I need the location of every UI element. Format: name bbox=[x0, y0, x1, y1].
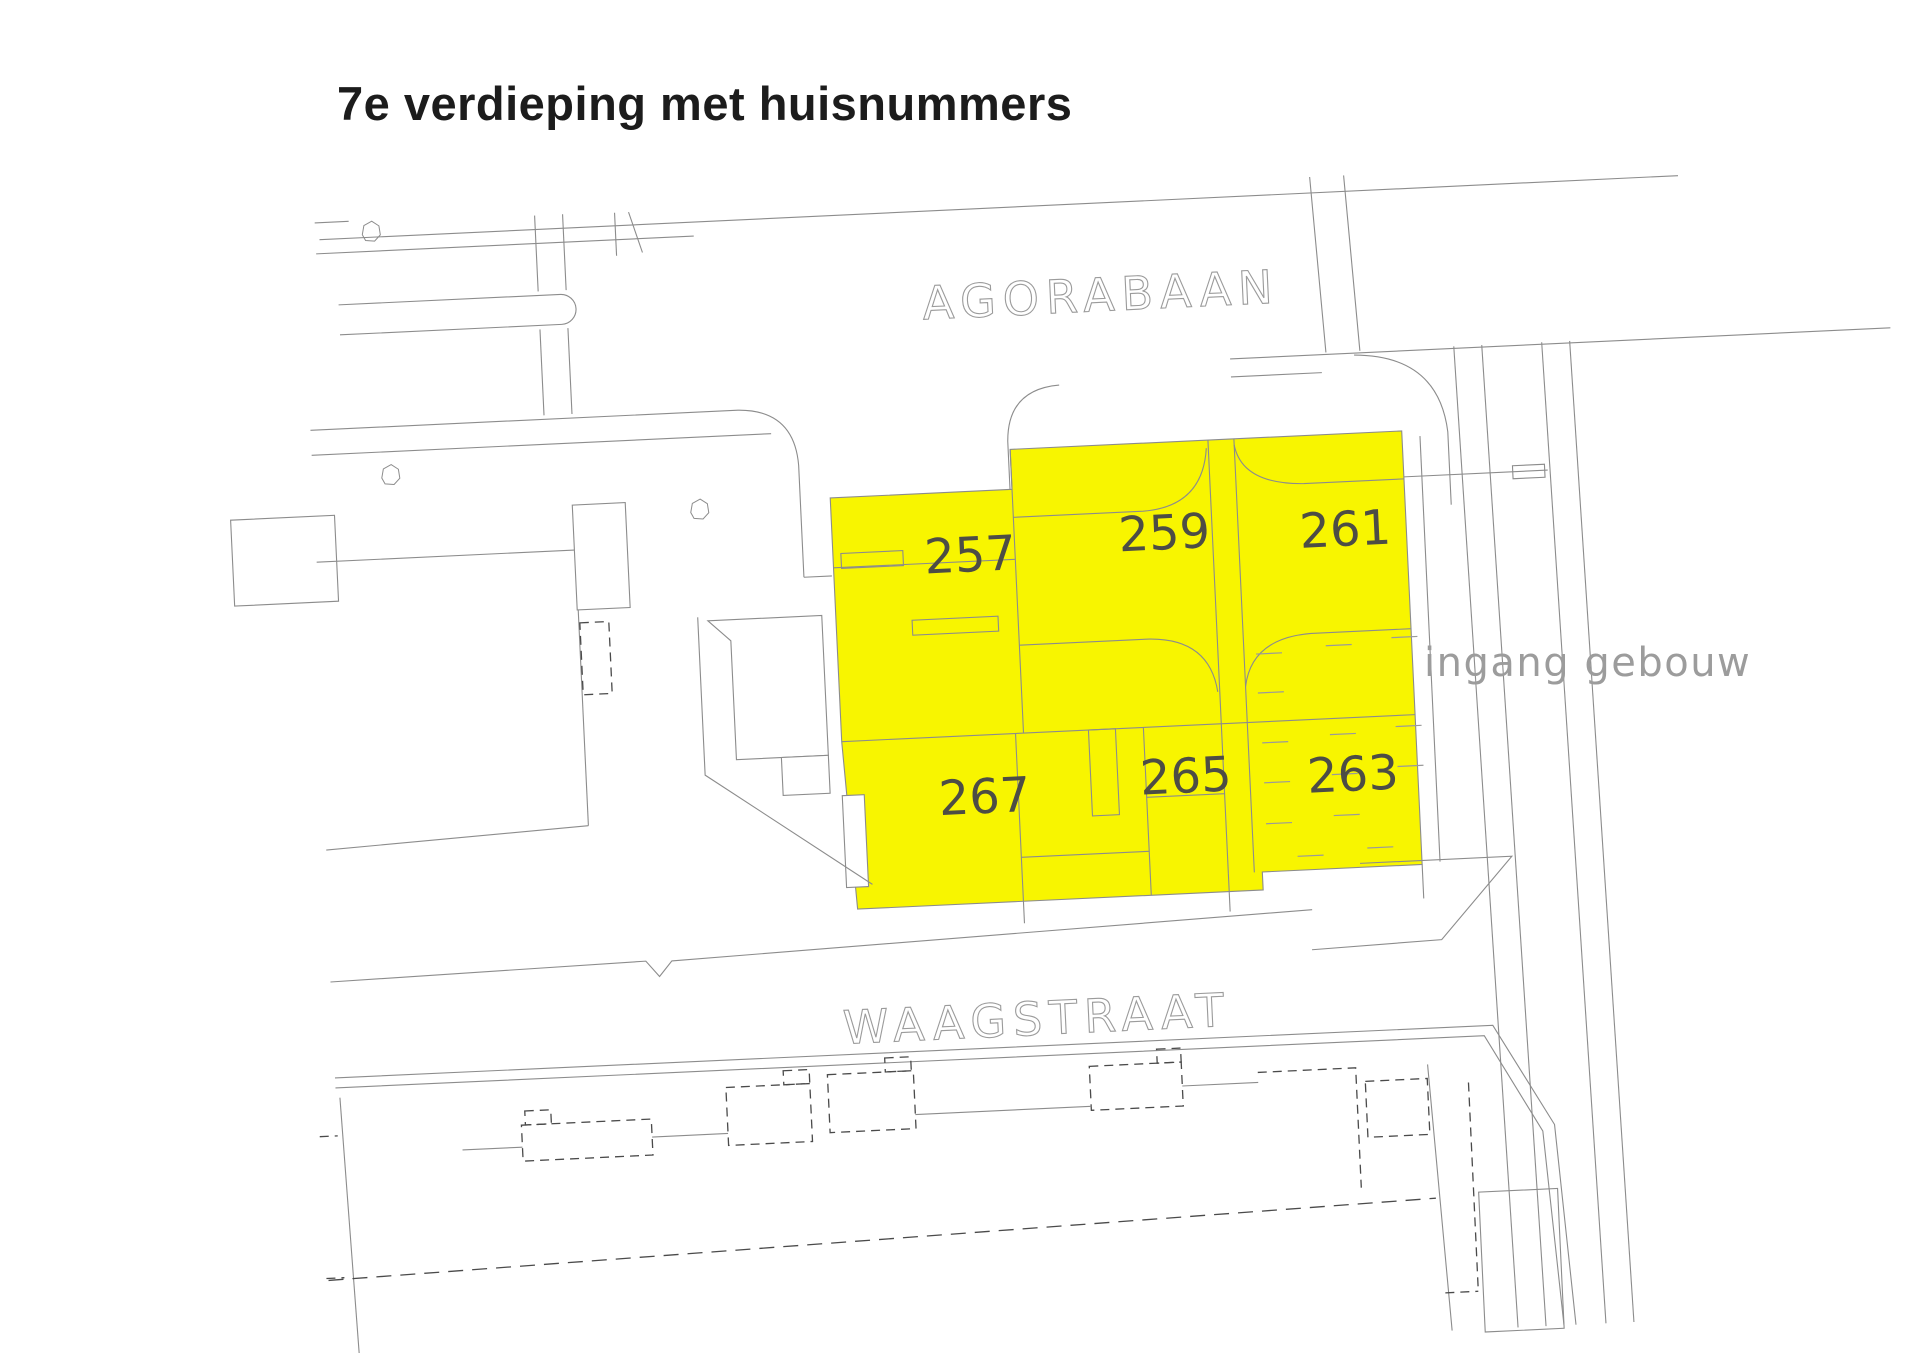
column-markers bbox=[362, 206, 709, 534]
road-lines-bottom bbox=[327, 854, 1576, 1353]
unit-label-265: 265 bbox=[1139, 746, 1233, 806]
unit-label-257: 257 bbox=[923, 525, 1017, 585]
column-icon bbox=[690, 499, 709, 520]
canopy-outline bbox=[1089, 1062, 1183, 1110]
column-icon bbox=[381, 464, 400, 485]
south-buildings bbox=[459, 1040, 1260, 1163]
canopy-outline bbox=[827, 1071, 916, 1133]
small-building bbox=[708, 615, 828, 760]
dashed-structure-left bbox=[580, 622, 612, 695]
canopy-outline bbox=[521, 1119, 653, 1161]
unit-label-263: 263 bbox=[1306, 744, 1400, 804]
street-label-waagstraat: WAAGSTRAAT bbox=[842, 983, 1232, 1055]
street-label-agorabaan: AGORABAAN bbox=[921, 260, 1280, 331]
wall-capsule bbox=[339, 294, 577, 335]
floor-plan-page: { "title": "7e verdieping met huisnummer… bbox=[0, 0, 1920, 1353]
left-building-linework bbox=[217, 201, 873, 914]
column-icon bbox=[362, 221, 381, 242]
unit-label-259: 259 bbox=[1117, 503, 1211, 563]
southeast-parcel bbox=[319, 1059, 1564, 1353]
canopy-outline bbox=[726, 1084, 813, 1146]
unit-label-267: 267 bbox=[937, 767, 1031, 827]
canopy-outline bbox=[783, 1070, 810, 1085]
canopy-outline bbox=[885, 1057, 912, 1072]
canopy-outline bbox=[525, 1110, 552, 1125]
unit-label-261: 261 bbox=[1298, 500, 1392, 560]
entrance-annotation: ingang gebouw bbox=[1424, 640, 1751, 686]
